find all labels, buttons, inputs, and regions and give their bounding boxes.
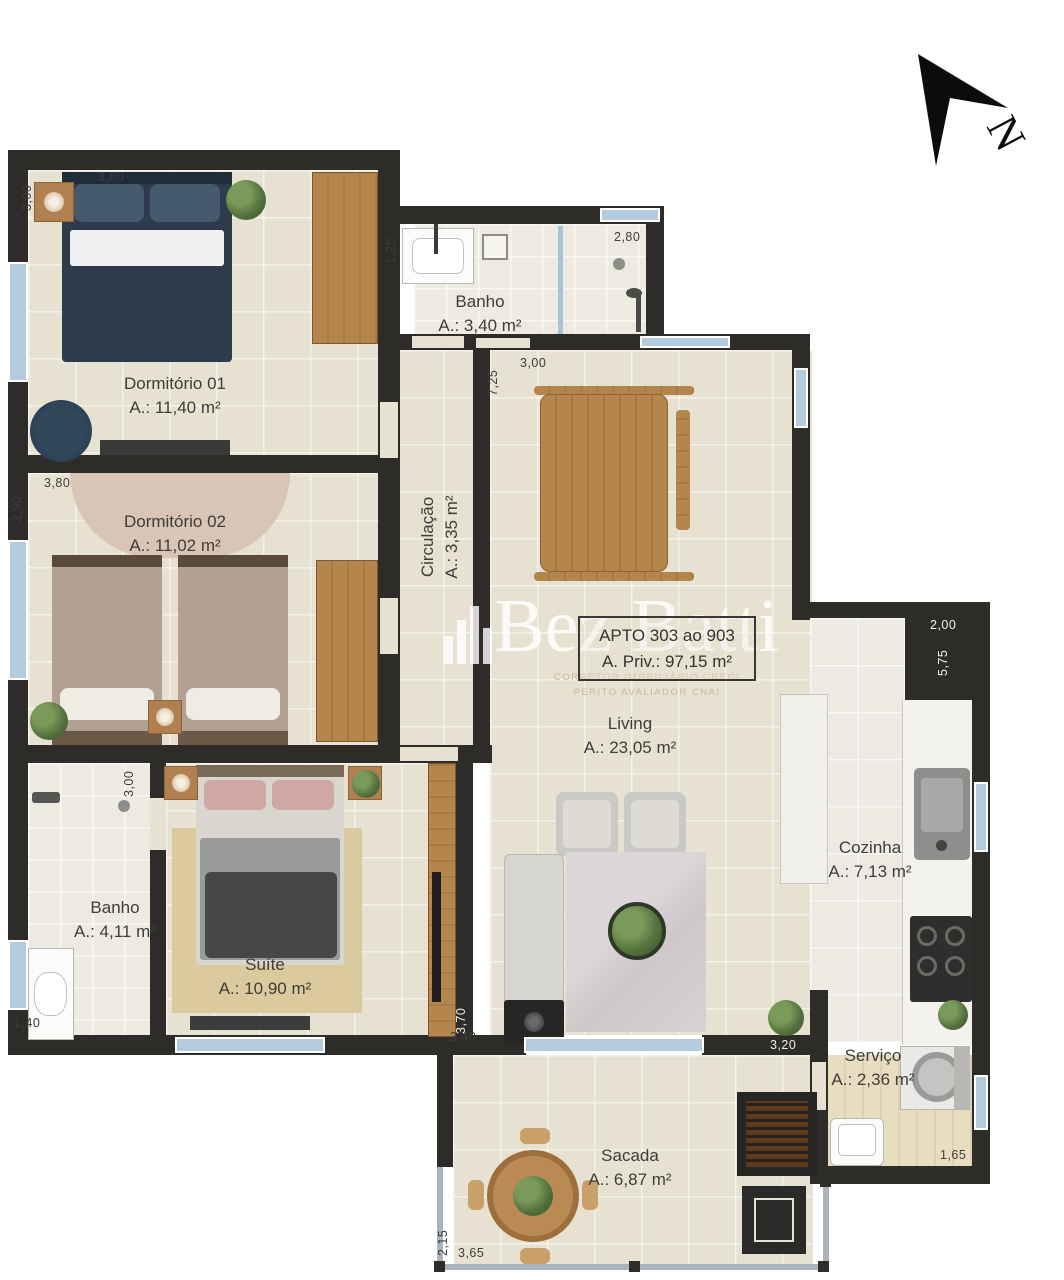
room-name: Suíte: [185, 953, 345, 977]
room-label-banho-social: Banho A.: 3,40 m²: [410, 290, 550, 338]
room-label-banho-suite: Banho A.: 4,11 m²: [45, 896, 185, 944]
laundry-tank-basin: [838, 1124, 876, 1156]
unit-title-box: APTO 303 ao 903 A. Priv.: 97,15 m²: [578, 616, 756, 681]
room-name: Cozinha: [800, 836, 940, 860]
window: [974, 1075, 988, 1130]
dorm1-pillow: [150, 184, 220, 222]
living-armchair-seat: [563, 800, 611, 848]
suite-plant: [352, 770, 380, 798]
dorm1-wardrobe: [312, 172, 378, 344]
dorm2-bed-a-head: [52, 731, 162, 745]
unit-label: APTO 303 ao 903: [592, 623, 742, 649]
sacada-table-plant: [513, 1176, 553, 1216]
dorm2-lamp: [156, 708, 174, 726]
banho-suite-drain: [118, 800, 130, 812]
dimension: 2,80: [614, 230, 640, 244]
window: [8, 940, 28, 1010]
room-name: Banho: [410, 290, 550, 314]
dorm2-wardrobe: [316, 560, 378, 742]
dimension: 5,75: [936, 650, 950, 676]
railing-post: [629, 1261, 640, 1272]
window-sacada-door: [524, 1037, 704, 1053]
dimension: 1,65: [940, 1148, 966, 1162]
railing-post: [434, 1261, 445, 1272]
wall-segment: [810, 990, 828, 1050]
wall-segment: [646, 206, 664, 350]
banho-suite-shower-head: [32, 792, 60, 803]
window: [8, 262, 28, 382]
suite-pillow: [204, 780, 266, 810]
dorm1-lamp: [44, 192, 64, 212]
room-name: Dormitório 02: [95, 510, 255, 534]
floor-plan: Dormitório 01 A.: 11,40 m² Dormitório 02…: [0, 0, 1064, 1280]
door-opening: [476, 338, 530, 348]
dimension: 3,80: [98, 170, 124, 184]
sacada-chair: [520, 1128, 550, 1144]
window: [600, 208, 660, 222]
suite-bench: [190, 1016, 310, 1030]
living-speaker: [524, 1012, 544, 1032]
dimension: 7,25: [486, 370, 500, 396]
dorm2-bed-b-pillow: [186, 688, 280, 720]
wall-segment: [8, 745, 402, 763]
room-label-dorm1: Dormitório 01 A.: 11,40 m²: [95, 372, 255, 420]
living-corner-plant: [768, 1000, 804, 1036]
room-name: Sacada: [555, 1144, 705, 1168]
living-armchair-seat: [631, 800, 679, 848]
banho-social-shower-pole: [636, 292, 641, 332]
room-name: Living: [550, 712, 710, 736]
suite-pillow: [272, 780, 334, 810]
dorm1-pillow: [74, 184, 144, 222]
door-opening: [150, 798, 166, 850]
dimension: 3,80: [44, 476, 70, 490]
suite-throw: [205, 872, 337, 958]
railing: [823, 1180, 829, 1270]
room-label-dorm2: Dormitório 02 A.: 11,02 m²: [95, 510, 255, 558]
dorm1-bed-headboard: [62, 172, 232, 184]
wall-segment: [8, 150, 400, 170]
room-area: A.: 7,13 m²: [828, 862, 911, 881]
railing-post: [818, 1261, 829, 1272]
banho-social-basin: [412, 238, 464, 274]
dorm1-dresser: [100, 440, 230, 455]
dimension: 3,65: [458, 1246, 484, 1260]
cooktop-burner: [945, 926, 965, 946]
kitchen-sink-basin: [921, 778, 963, 832]
wall-segment: [437, 1055, 453, 1167]
room-name: Circulação: [416, 462, 440, 612]
dorm1-sheet: [70, 230, 224, 266]
wall-segment: [473, 334, 490, 763]
unit-private-area: A. Priv.: 97,15 m²: [592, 649, 742, 675]
banho-social-faucet: [434, 224, 438, 254]
room-label-suite: Suíte A.: 10,90 m²: [185, 953, 345, 1001]
room-area: A.: 4,11 m²: [74, 922, 156, 941]
north-arrow: N: [890, 46, 1030, 176]
room-area: A.: 3,35 m²: [442, 495, 461, 578]
dorm2-plant: [30, 702, 68, 740]
dimension: 3,00: [520, 356, 546, 370]
railing-post: [820, 1176, 831, 1187]
sacada-chair: [520, 1248, 550, 1264]
banho-suite-basin: [34, 972, 67, 1016]
room-label-living: Living A.: 23,05 m²: [550, 712, 710, 760]
dimension: 3,70: [454, 1008, 468, 1034]
suite-lamp: [172, 774, 190, 792]
suite-tv: [432, 872, 441, 1002]
room-area: A.: 11,02 m²: [129, 536, 220, 555]
dimension: 1,25: [384, 238, 398, 264]
dining-chairs: [676, 410, 690, 530]
wall-segment: [810, 1166, 990, 1184]
room-area: A.: 23,05 m²: [584, 738, 677, 757]
door-opening: [412, 336, 464, 348]
room-label-circulacao: Circulação A.: 3,35 m²: [416, 462, 464, 612]
dining-table: [540, 394, 668, 572]
washing-machine-panel: [954, 1046, 970, 1110]
banho-social-drain: [613, 258, 625, 270]
room-area: A.: 3,40 m²: [438, 316, 521, 335]
window: [974, 782, 988, 852]
cooktop-burner: [945, 956, 965, 976]
room-name: Banho: [45, 896, 185, 920]
window: [640, 336, 730, 348]
room-label-sacada: Sacada A.: 6,87 m²: [555, 1144, 705, 1192]
dorm2-bed-b-head: [178, 731, 288, 745]
barbecue-grate: [746, 1101, 808, 1167]
dorm1-rug: [30, 400, 92, 462]
room-area: A.: 10,90 m²: [219, 979, 312, 998]
service-shaft-inner: [754, 1198, 794, 1242]
dimension: 2,00: [930, 618, 956, 632]
room-area: A.: 6,87 m²: [588, 1170, 671, 1189]
sacada-chair: [468, 1180, 484, 1210]
dimension: 3,00: [20, 185, 34, 211]
door-opening: [380, 402, 398, 458]
living-center-plant: [608, 902, 666, 960]
dining-bench: [534, 572, 694, 581]
room-area: A.: 2,36 m²: [831, 1070, 914, 1089]
dorm2-bed-a-pillow: [60, 688, 154, 720]
banho-social-shower-head: [626, 288, 642, 298]
banho-social-glass: [558, 226, 563, 334]
dimension: 3,20: [770, 1038, 796, 1052]
room-label-servico: Serviço A.: 2,36 m²: [808, 1044, 938, 1092]
dorm1-plant: [226, 180, 266, 220]
banho-social-drain-square: [482, 234, 508, 260]
window: [794, 368, 808, 428]
dimension: 3,00: [122, 771, 136, 797]
door-opening: [380, 598, 398, 654]
cooktop-burner: [917, 956, 937, 976]
north-label: N: [977, 108, 1030, 159]
room-area: A.: 11,40 m²: [129, 398, 220, 417]
room-label-cozinha: Cozinha A.: 7,13 m²: [800, 836, 940, 884]
suite-bed-headboard: [196, 765, 344, 777]
room-name: Dormitório 01: [95, 372, 255, 396]
window: [8, 540, 28, 680]
window-suite-sliding: [175, 1037, 325, 1053]
door-opening: [400, 747, 458, 761]
room-name: Serviço: [808, 1044, 938, 1068]
kitchen-plant: [938, 1000, 968, 1030]
dimension: 1,40: [14, 1016, 40, 1030]
dimension: 2,90: [10, 496, 24, 522]
cooktop-burner: [917, 926, 937, 946]
dimension: 2,15: [436, 1230, 450, 1256]
